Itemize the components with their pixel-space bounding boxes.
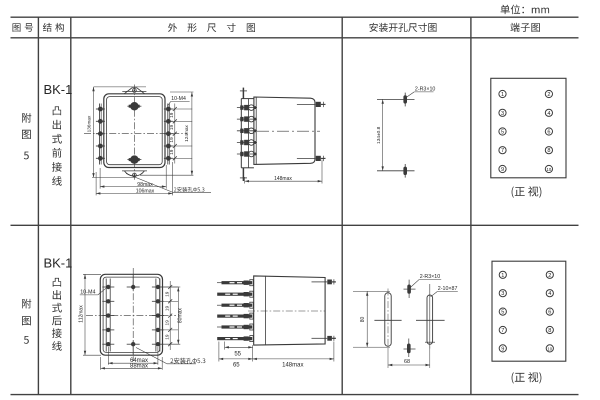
svg-text:9: 9 [501, 346, 504, 352]
svg-text:106max: 106max [136, 189, 155, 195]
svg-text:148max: 148max [282, 363, 303, 369]
svg-text:2: 2 [547, 92, 550, 98]
svg-text:7: 7 [501, 328, 504, 334]
svg-text:19: 19 [169, 137, 175, 143]
svg-text:7: 7 [501, 148, 504, 154]
svg-text:19: 19 [165, 306, 171, 312]
svg-text:10: 10 [547, 346, 552, 351]
svg-text:3: 3 [501, 291, 504, 297]
svg-text:80max: 80max [178, 308, 184, 324]
svg-text:19: 19 [169, 112, 175, 118]
svg-text:2-R3×10: 2-R3×10 [415, 86, 436, 92]
svg-text:19: 19 [169, 149, 175, 155]
svg-text:5: 5 [501, 130, 504, 136]
svg-text:2-R3×10: 2-R3×10 [420, 274, 441, 280]
svg-text:65: 65 [233, 363, 240, 369]
svg-text:3: 3 [501, 111, 504, 117]
svg-text:5: 5 [501, 310, 504, 316]
svg-text:BK-1: BK-1 [43, 82, 72, 97]
svg-text:19: 19 [165, 291, 171, 297]
svg-text:55: 55 [234, 352, 241, 358]
svg-text:6: 6 [547, 130, 550, 136]
svg-text:148max: 148max [274, 176, 292, 182]
svg-text:10-M4: 10-M4 [80, 289, 95, 295]
svg-text:124max: 124max [184, 125, 189, 142]
svg-text:8: 8 [547, 148, 550, 154]
svg-text:134±0.8: 134±0.8 [376, 126, 382, 144]
svg-text:80: 80 [360, 317, 366, 323]
svg-text:19: 19 [169, 125, 175, 131]
svg-text:2-10×87: 2-10×87 [438, 286, 458, 292]
svg-text:98max: 98max [137, 182, 153, 188]
svg-text:10: 10 [547, 167, 552, 172]
svg-text:1: 1 [501, 92, 504, 98]
svg-text:88max: 88max [130, 363, 148, 369]
svg-text:2: 2 [548, 273, 551, 279]
svg-text:4: 4 [548, 291, 551, 297]
svg-text:112max: 112max [78, 305, 84, 323]
svg-text:8: 8 [548, 328, 551, 334]
svg-text:6: 6 [548, 310, 551, 316]
svg-text:19: 19 [165, 334, 171, 340]
svg-text:BK-1: BK-1 [43, 255, 72, 270]
svg-text:1: 1 [501, 273, 504, 279]
svg-text:19: 19 [165, 320, 171, 326]
svg-text:136max: 136max [87, 115, 92, 132]
svg-text:68: 68 [404, 359, 410, 365]
svg-text:4: 4 [547, 111, 550, 117]
svg-text:9: 9 [501, 167, 504, 173]
